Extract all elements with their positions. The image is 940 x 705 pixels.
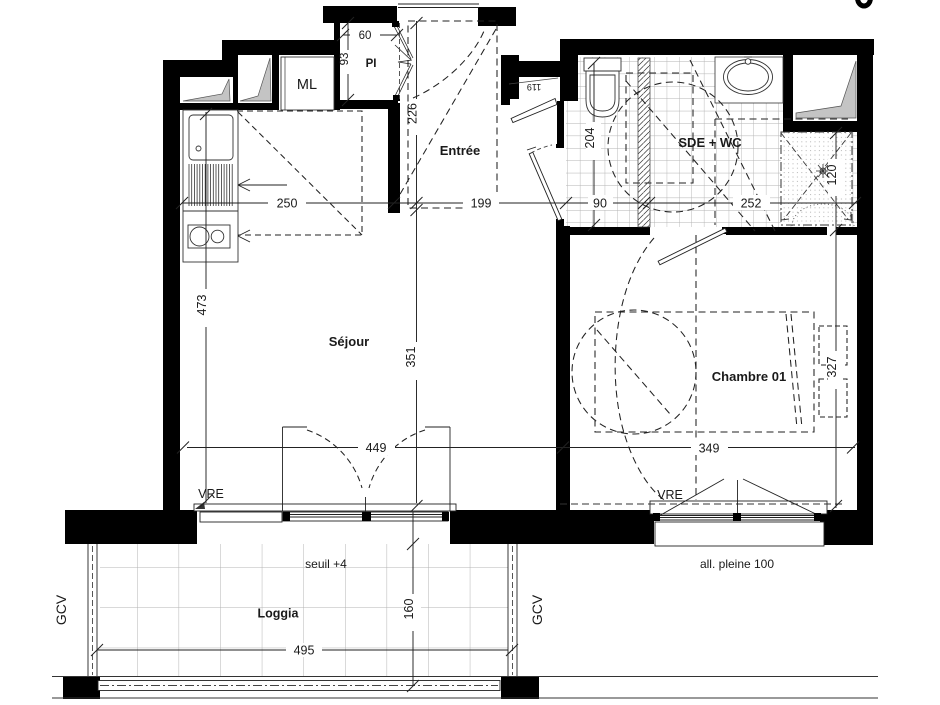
svg-text:204: 204 [583,128,597,149]
svg-text:160: 160 [402,599,416,620]
svg-text:PI: PI [366,58,377,70]
svg-text:VRE: VRE [198,487,224,501]
svg-text:60: 60 [359,30,372,42]
svg-text:Loggia: Loggia [258,607,300,621]
svg-text:351: 351 [404,347,418,368]
svg-text:449: 449 [366,441,387,455]
svg-text:119: 119 [527,82,541,92]
svg-text:all. pleine 100: all. pleine 100 [700,557,774,571]
svg-text:349: 349 [699,442,720,456]
svg-text:Séjour: Séjour [329,334,369,349]
svg-text:327: 327 [825,357,839,378]
svg-text:GCV: GCV [53,594,69,625]
svg-text:seuil +4: seuil +4 [305,557,347,571]
svg-text:SDE + WC: SDE + WC [678,135,742,150]
svg-text:ML: ML [297,77,317,93]
svg-text:250: 250 [277,197,298,211]
svg-text:Entrée: Entrée [440,143,480,158]
svg-text:252: 252 [741,197,762,211]
svg-text:93: 93 [339,53,351,66]
svg-text:473: 473 [195,295,209,316]
svg-text:199: 199 [471,197,492,211]
svg-text:GCV: GCV [529,594,545,625]
svg-text:VRE: VRE [657,488,683,502]
svg-text:495: 495 [294,644,315,658]
svg-text:Chambre 01: Chambre 01 [712,369,786,384]
svg-text:120: 120 [825,165,839,186]
svg-text:90: 90 [593,197,607,211]
svg-text:226: 226 [406,103,420,124]
